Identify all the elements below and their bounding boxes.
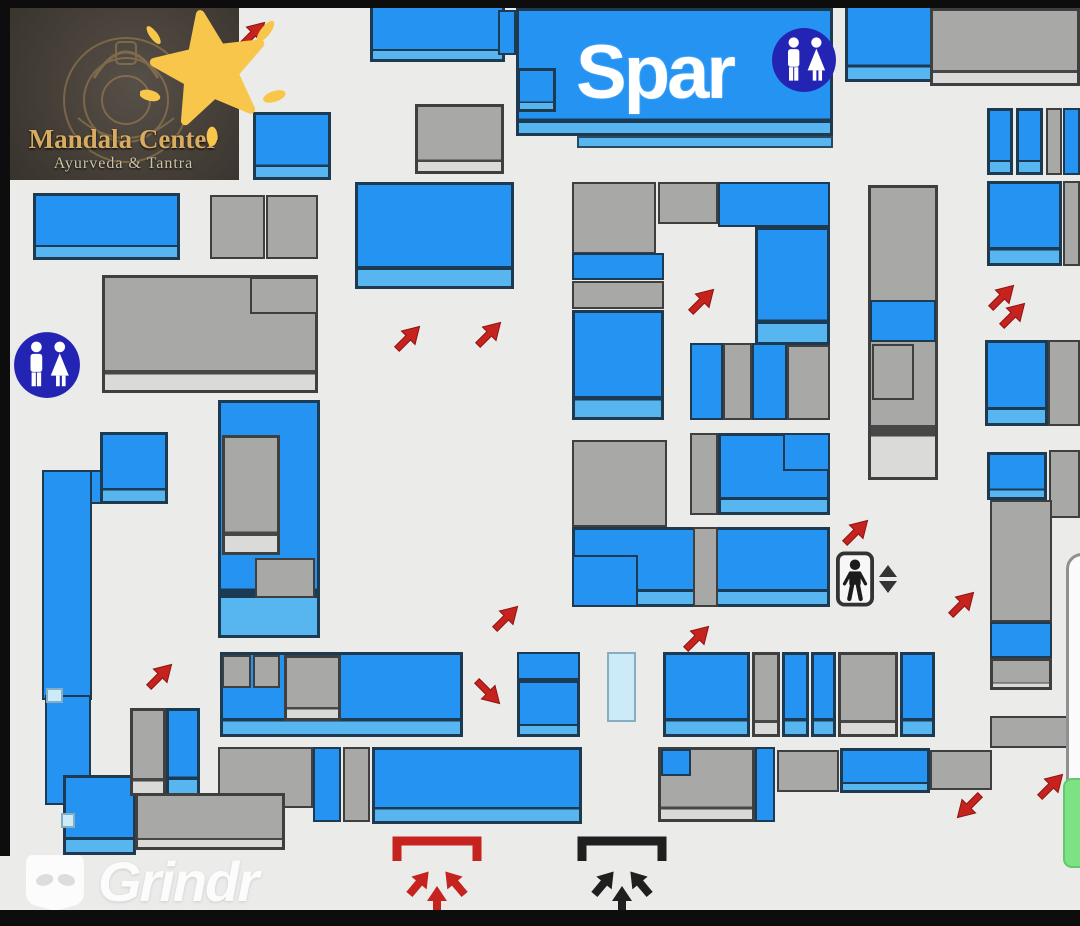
store-block[interactable] <box>572 555 638 607</box>
store-block[interactable] <box>1048 340 1080 426</box>
store-block[interactable] <box>752 652 780 737</box>
entrance-arrows-icon-black <box>576 833 668 919</box>
store-block[interactable] <box>870 300 936 342</box>
red-direction-arrow-icon <box>686 288 720 312</box>
spar-label: Spar <box>576 29 733 116</box>
store-block[interactable] <box>135 793 285 850</box>
store-block[interactable] <box>690 343 723 420</box>
store-block[interactable] <box>987 108 1013 175</box>
store-block[interactable] <box>985 340 1048 426</box>
red-direction-arrow-icon <box>392 325 426 349</box>
store-block[interactable] <box>498 10 516 55</box>
store-block[interactable] <box>253 655 280 688</box>
store-block[interactable] <box>930 750 992 790</box>
store-block[interactable] <box>210 195 265 259</box>
store-block[interactable] <box>723 343 752 420</box>
entrance-arrows-icon-red <box>391 833 483 919</box>
store-block[interactable] <box>787 345 830 420</box>
red-direction-arrow-icon <box>144 663 178 687</box>
restroom-icon <box>771 27 837 93</box>
store-block[interactable] <box>1046 108 1062 175</box>
store-block[interactable] <box>752 343 787 420</box>
store-block[interactable] <box>755 227 830 345</box>
store-block[interactable] <box>61 813 75 828</box>
store-block[interactable] <box>517 680 580 737</box>
store-block[interactable] <box>100 432 168 504</box>
top-black-bar <box>0 0 1080 8</box>
store-block[interactable] <box>811 652 836 737</box>
store-block[interactable] <box>718 182 830 227</box>
store-block[interactable] <box>838 652 898 737</box>
store-block[interactable] <box>1049 450 1080 518</box>
store-block[interactable] <box>987 181 1062 266</box>
store-block[interactable] <box>372 747 582 824</box>
star-sticker-icon <box>140 2 286 148</box>
store-block[interactable] <box>46 688 63 703</box>
store-block[interactable] <box>222 435 280 555</box>
store-block[interactable] <box>783 433 830 471</box>
red-direction-arrow-icon <box>472 681 506 705</box>
elevator-icon <box>836 551 897 607</box>
store-block[interactable] <box>343 747 370 822</box>
store-block[interactable] <box>266 195 318 259</box>
store-block[interactable] <box>355 182 514 289</box>
store-block[interactable] <box>572 440 667 527</box>
store-block[interactable] <box>572 253 664 280</box>
store-block[interactable] <box>987 452 1047 500</box>
store-block[interactable] <box>990 500 1052 622</box>
red-direction-arrow-icon <box>473 321 507 345</box>
red-direction-arrow-icon <box>997 302 1031 326</box>
red-direction-arrow-icon <box>681 625 715 649</box>
store-block[interactable] <box>1016 108 1043 175</box>
store-block[interactable] <box>990 622 1052 658</box>
store-block[interactable] <box>782 652 809 737</box>
store-block[interactable] <box>130 708 166 796</box>
red-direction-arrow-icon <box>946 591 980 615</box>
store-block[interactable] <box>1063 181 1080 266</box>
store-block[interactable] <box>284 655 341 721</box>
store-block[interactable] <box>577 136 833 148</box>
store-block[interactable] <box>572 281 664 309</box>
store-block[interactable] <box>517 68 556 112</box>
store-block[interactable] <box>1063 108 1080 175</box>
store-block[interactable] <box>222 655 251 688</box>
store-block[interactable] <box>33 193 180 260</box>
store-block[interactable] <box>607 652 636 722</box>
store-block[interactable] <box>42 470 92 700</box>
store-block[interactable] <box>250 277 318 314</box>
elevator-person-icon <box>836 551 874 607</box>
store-block[interactable] <box>658 182 718 224</box>
red-direction-arrow-icon <box>490 605 524 629</box>
store-block[interactable] <box>930 8 1080 86</box>
store-block[interactable] <box>572 182 656 254</box>
store-block[interactable] <box>755 747 775 822</box>
left-black-bar <box>0 0 10 856</box>
store-block[interactable] <box>313 747 341 822</box>
restroom-icon <box>13 331 81 399</box>
up-down-arrows-icon <box>879 565 897 593</box>
store-block[interactable] <box>415 104 504 174</box>
watermark-label: Grindr <box>98 849 257 914</box>
store-block[interactable] <box>166 708 200 796</box>
red-direction-arrow-icon <box>951 795 985 819</box>
store-block[interactable] <box>872 344 914 400</box>
store-block[interactable] <box>777 750 839 792</box>
store-block[interactable] <box>255 558 315 598</box>
store-block[interactable] <box>840 748 930 793</box>
floor-indicator-green[interactable] <box>1063 778 1080 868</box>
store-block[interactable] <box>900 652 935 737</box>
store-block[interactable] <box>661 749 691 776</box>
store-block[interactable] <box>663 652 750 737</box>
store-block[interactable] <box>845 4 933 82</box>
store-block[interactable] <box>572 310 664 420</box>
red-direction-arrow-icon <box>840 519 874 543</box>
store-block[interactable] <box>370 5 505 62</box>
store-block[interactable] <box>693 527 718 607</box>
store-block[interactable] <box>990 658 1052 690</box>
grindr-watermark: Grindr <box>24 848 257 914</box>
store-block[interactable] <box>517 652 580 680</box>
logo-subtitle: Ayurveda & Tantra <box>8 155 239 173</box>
grindr-mask-icon <box>24 848 86 914</box>
store-block[interactable] <box>690 433 718 515</box>
bottom-black-bar <box>0 910 1080 926</box>
mall-floor-plan: Spar Mandala Center Ay <box>0 0 1080 926</box>
